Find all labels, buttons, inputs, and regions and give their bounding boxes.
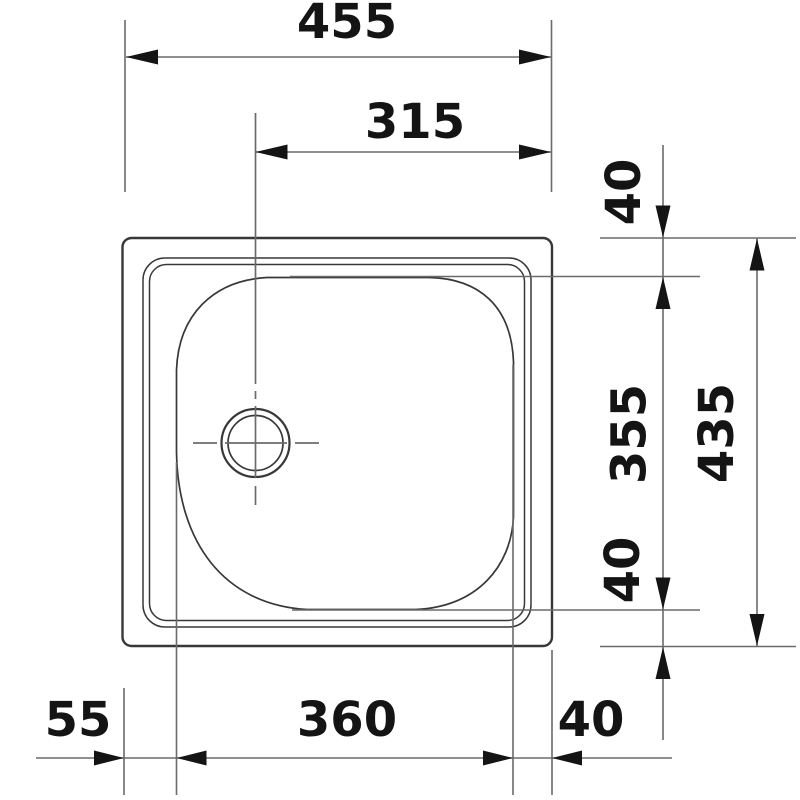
arrowhead-right [94, 751, 124, 766]
arrowhead-group [94, 50, 765, 766]
dimension-label-drain-offset: 315 [365, 94, 465, 150]
arrowhead-right [519, 145, 551, 160]
arrowhead-up [656, 277, 671, 309]
dimension-label-overall-width: 455 [297, 0, 397, 50]
dimension-label-overall-depth: 435 [689, 383, 745, 483]
sink-outline-group [123, 238, 553, 646]
dimension-label-right-inset: 40 [558, 692, 625, 748]
dimension-label-left-offset: 55 [45, 692, 112, 748]
dimension-label-bowl-width: 360 [297, 692, 397, 748]
arrowhead-left [177, 751, 207, 766]
arrowhead-down [750, 614, 765, 646]
arrowhead-left [126, 50, 158, 65]
sink-dimension-drawing: 455 315 40 355 435 40 55 360 40 [0, 0, 800, 800]
arrowhead-left [256, 145, 288, 160]
arrowhead-right [483, 751, 513, 766]
arrowhead-right [519, 50, 551, 65]
arrowhead-left [552, 751, 582, 766]
arrowhead-up [750, 239, 765, 271]
dimension-label-top-inset: 40 [596, 159, 652, 226]
arrowhead-down [656, 206, 671, 238]
arrowhead-up [656, 647, 671, 679]
sink-outer-edge [123, 238, 553, 646]
dimension-label-bottom-inset: 40 [595, 537, 651, 604]
sink-technical-drawing-canvas: 455 315 40 355 435 40 55 360 40 [0, 0, 800, 800]
centerline-group [193, 113, 319, 505]
dimension-label-bowl-length: 355 [602, 384, 658, 484]
arrowhead-down [656, 578, 671, 610]
